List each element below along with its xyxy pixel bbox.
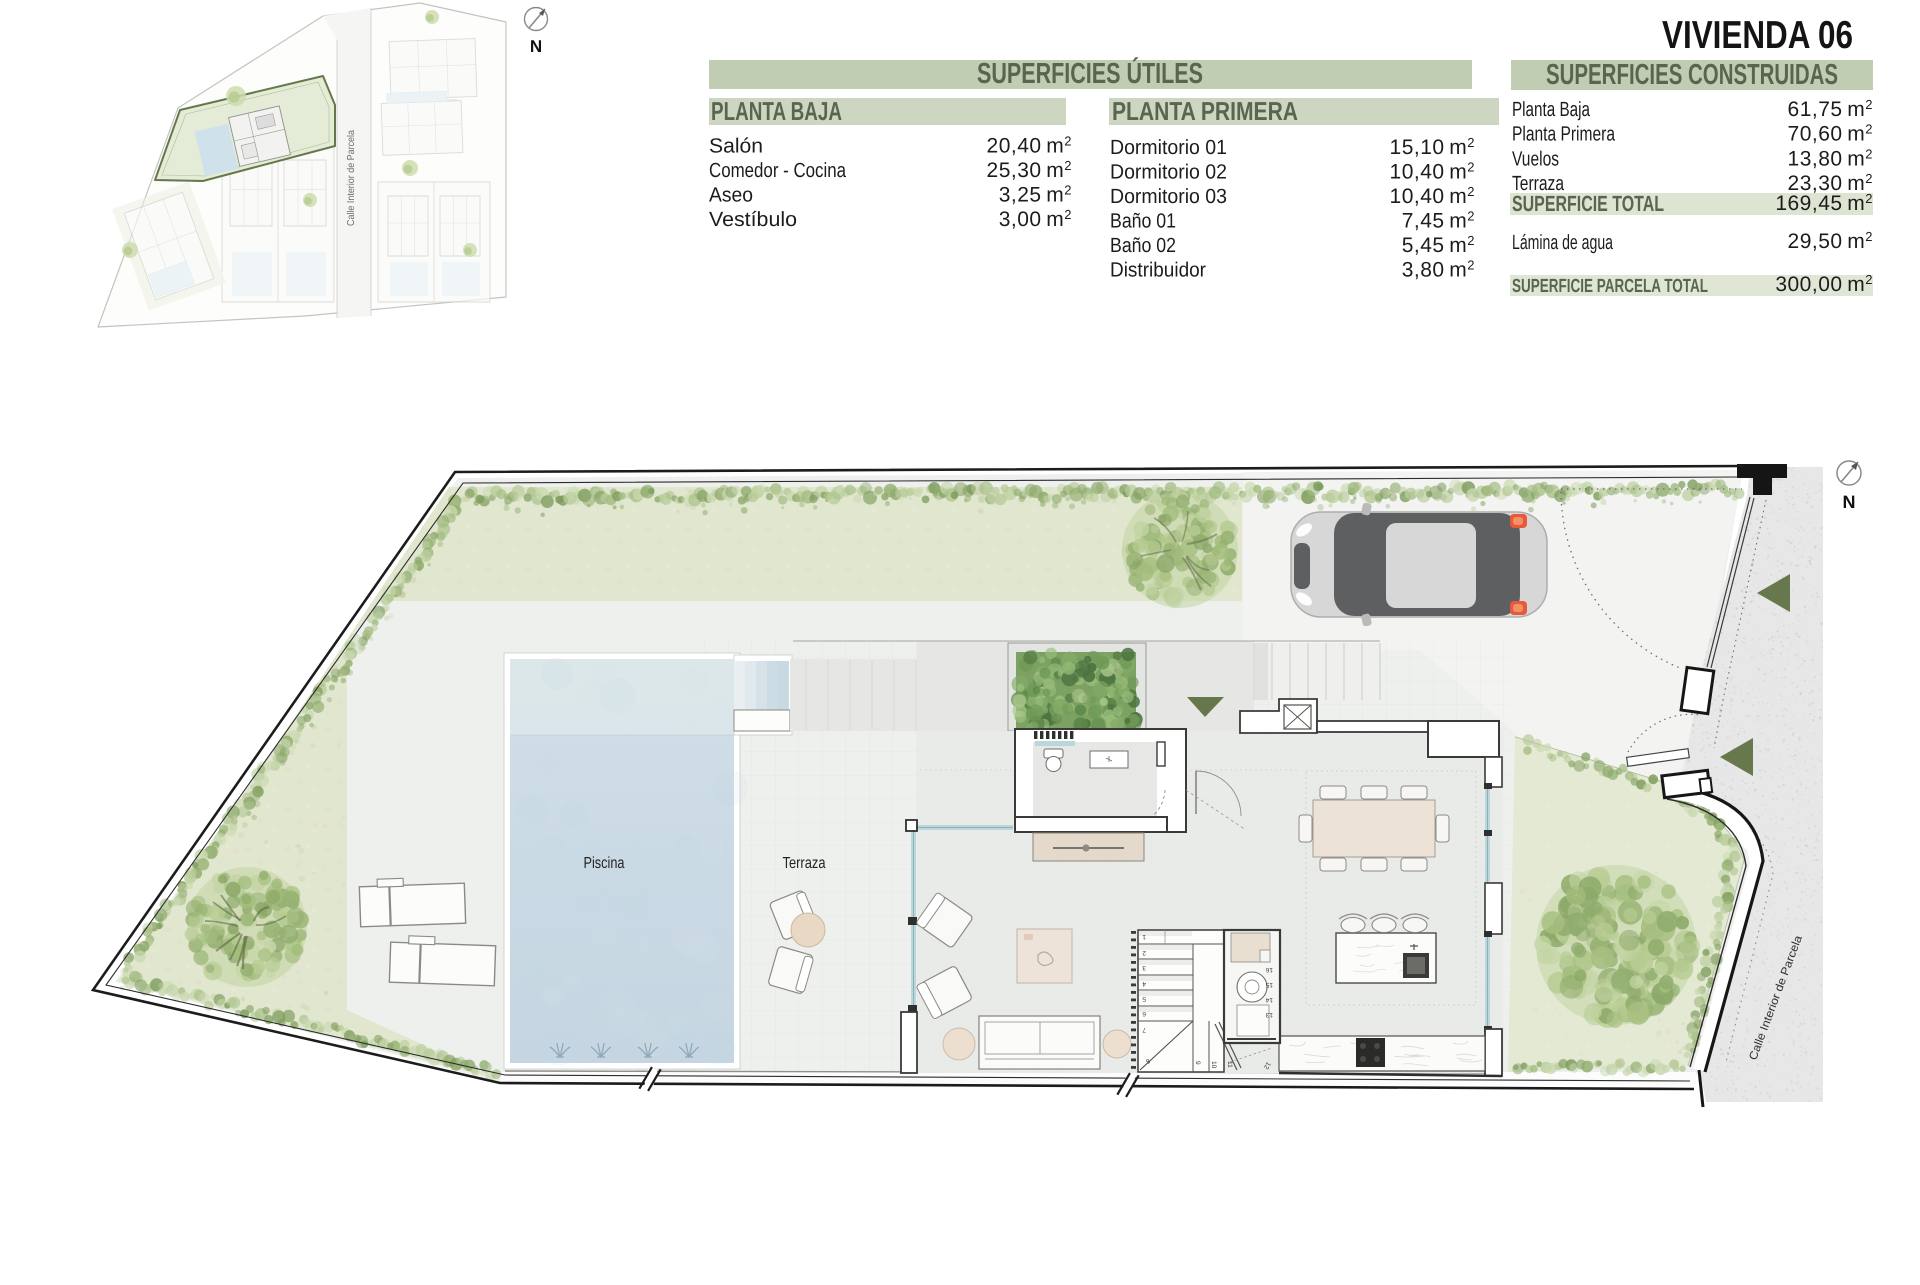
svg-text:10,40 m2: 10,40 m2 — [1390, 160, 1475, 184]
svg-text:29,50 m2: 29,50 m2 — [1788, 229, 1873, 253]
svg-text:Calle Interior de Parcela: Calle Interior de Parcela — [346, 130, 357, 226]
svg-text:7,45 m2: 7,45 m2 — [1402, 209, 1475, 233]
svg-text:2: 2 — [1142, 949, 1146, 956]
svg-text:SUPERFICIE TOTAL: SUPERFICIE TOTAL — [1512, 191, 1664, 216]
svg-text:Planta Baja: Planta Baja — [1512, 98, 1590, 121]
svg-text:15,10 m2: 15,10 m2 — [1390, 135, 1475, 159]
svg-text:Dormitorio 03: Dormitorio 03 — [1110, 185, 1227, 208]
svg-text:Salón: Salón — [709, 135, 763, 158]
svg-text:Dormitorio 01: Dormitorio 01 — [1110, 136, 1227, 159]
svg-text:Baño 02: Baño 02 — [1110, 234, 1176, 257]
svg-text:15: 15 — [1265, 981, 1273, 988]
svg-text:3: 3 — [1142, 964, 1146, 971]
svg-text:PLANTA BAJA: PLANTA BAJA — [711, 96, 842, 126]
svg-text:SUPERFICIE PARCELA TOTAL: SUPERFICIE PARCELA TOTAL — [1512, 276, 1708, 297]
svg-text:PLANTA PRIMERA: PLANTA PRIMERA — [1112, 96, 1298, 126]
svg-text:Aseo: Aseo — [709, 184, 753, 207]
svg-text:Dormitorio 02: Dormitorio 02 — [1110, 161, 1227, 184]
svg-text:10,40 m2: 10,40 m2 — [1390, 184, 1475, 208]
svg-text:4: 4 — [1142, 980, 1146, 987]
svg-text:Terraza: Terraza — [783, 855, 826, 872]
svg-text:70,60 m2: 70,60 m2 — [1788, 122, 1873, 146]
svg-text:9: 9 — [1194, 1061, 1201, 1065]
svg-text:300,00 m2: 300,00 m2 — [1775, 272, 1873, 296]
svg-text:Distribuidor: Distribuidor — [1110, 259, 1206, 282]
svg-text:Vestíbulo: Vestíbulo — [709, 208, 797, 231]
svg-text:169,45 m2: 169,45 m2 — [1775, 191, 1873, 215]
svg-text:13: 13 — [1265, 1011, 1273, 1018]
svg-text:25,30 m2: 25,30 m2 — [987, 158, 1072, 182]
svg-text:Piscina: Piscina — [584, 855, 625, 872]
svg-text:6: 6 — [1142, 1010, 1146, 1017]
svg-text:11: 11 — [1226, 1061, 1233, 1068]
svg-text:N: N — [1843, 492, 1856, 512]
svg-text:Vuelos: Vuelos — [1512, 147, 1559, 170]
svg-text:13,80 m2: 13,80 m2 — [1788, 146, 1873, 170]
svg-text:SUPERFICIES ÚTILES: SUPERFICIES ÚTILES — [977, 57, 1203, 90]
svg-text:Comedor - Cocina: Comedor - Cocina — [709, 159, 846, 182]
svg-text:14: 14 — [1265, 996, 1273, 1003]
svg-text:5,45 m2: 5,45 m2 — [1402, 233, 1475, 257]
svg-text:61,75 m2: 61,75 m2 — [1788, 97, 1873, 121]
svg-text:3,80 m2: 3,80 m2 — [1402, 258, 1475, 282]
svg-text:10: 10 — [1210, 1061, 1217, 1069]
svg-text:20,40 m2: 20,40 m2 — [987, 134, 1072, 158]
svg-text:SUPERFICIES CONSTRUIDAS: SUPERFICIES CONSTRUIDAS — [1546, 59, 1838, 91]
svg-text:Planta Primera: Planta Primera — [1512, 123, 1615, 146]
svg-text:N: N — [530, 37, 542, 56]
svg-text:VIVIENDA 06: VIVIENDA 06 — [1662, 14, 1853, 57]
svg-text:Lámina de agua: Lámina de agua — [1512, 231, 1613, 254]
svg-text:3,25 m2: 3,25 m2 — [999, 183, 1072, 207]
svg-text:Baño 01: Baño 01 — [1110, 210, 1176, 233]
svg-text:16: 16 — [1265, 966, 1273, 973]
svg-text:1: 1 — [1142, 933, 1146, 940]
svg-text:5: 5 — [1142, 995, 1146, 1002]
svg-text:7: 7 — [1142, 1026, 1146, 1033]
svg-text:3,00 m2: 3,00 m2 — [999, 207, 1072, 231]
